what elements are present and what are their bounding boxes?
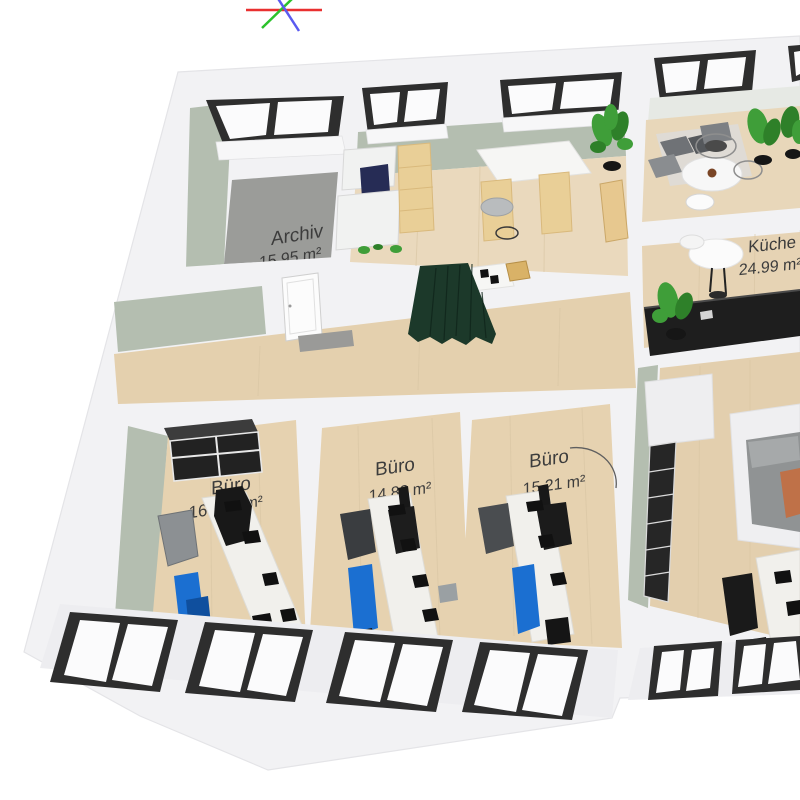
chair-cushion: [705, 140, 727, 152]
vase[interactable]: [708, 169, 717, 178]
monitor[interactable]: [400, 538, 417, 552]
window-pane: [662, 61, 700, 93]
window-pane: [404, 89, 440, 122]
door-handle-icon: [289, 305, 292, 308]
monitor[interactable]: [412, 574, 429, 588]
checkerboard[interactable]: [480, 269, 489, 278]
monitor[interactable]: [422, 608, 439, 622]
crate-stack[interactable]: [398, 143, 434, 233]
monitor[interactable]: [388, 504, 406, 516]
white-chair[interactable]: [686, 194, 714, 210]
stool[interactable]: [481, 198, 513, 216]
wall-plant[interactable]: [390, 245, 402, 253]
desk-equipment[interactable]: [545, 617, 571, 645]
plant-pot: [754, 155, 772, 165]
window-pane: [560, 79, 614, 109]
wall-plant[interactable]: [358, 246, 370, 254]
white-chair[interactable]: [680, 235, 704, 249]
plant-leaf: [652, 309, 668, 323]
window-pane: [274, 100, 332, 135]
room-buero-3[interactable]: Büro 15.21 m²: [460, 404, 622, 648]
wire-shelf-unit[interactable]: [336, 190, 400, 250]
checkerboard: [490, 275, 499, 284]
window-pane: [508, 83, 556, 114]
monitor[interactable]: [786, 600, 800, 616]
monitor[interactable]: [262, 572, 279, 586]
monitor[interactable]: [224, 500, 242, 512]
room-buero-1[interactable]: Büro 16 m²: [114, 419, 306, 642]
room-archiv[interactable]: Archiv 15.95 m²: [162, 96, 356, 306]
crate-leg: [539, 172, 572, 234]
plant-leaf: [617, 138, 633, 150]
monitor[interactable]: [526, 500, 544, 512]
monitor[interactable]: [242, 530, 261, 544]
viewport-3d[interactable]: Archiv 15.95 m²: [0, 0, 800, 800]
plant-pot: [603, 161, 621, 171]
monitor[interactable]: [538, 534, 555, 548]
white-cabinet[interactable]: [645, 374, 714, 446]
side-cabinet[interactable]: [438, 583, 458, 603]
room-kueche[interactable]: Küche 24.99 m²: [642, 232, 800, 356]
wood-chair[interactable]: [506, 261, 530, 281]
room-buero-2[interactable]: Büro 14.82 m²: [310, 412, 470, 646]
plant-pot: [666, 328, 686, 340]
plant-leaf: [590, 141, 606, 153]
wall-plant[interactable]: [373, 244, 383, 250]
window-pane: [370, 92, 400, 125]
monitor[interactable]: [550, 572, 567, 586]
monitor[interactable]: [280, 608, 297, 622]
plant-leaf: [604, 104, 618, 130]
window-pane: [704, 57, 746, 89]
monitor[interactable]: [774, 570, 792, 584]
floor-plan-canvas[interactable]: Archiv 15.95 m²: [0, 0, 800, 800]
